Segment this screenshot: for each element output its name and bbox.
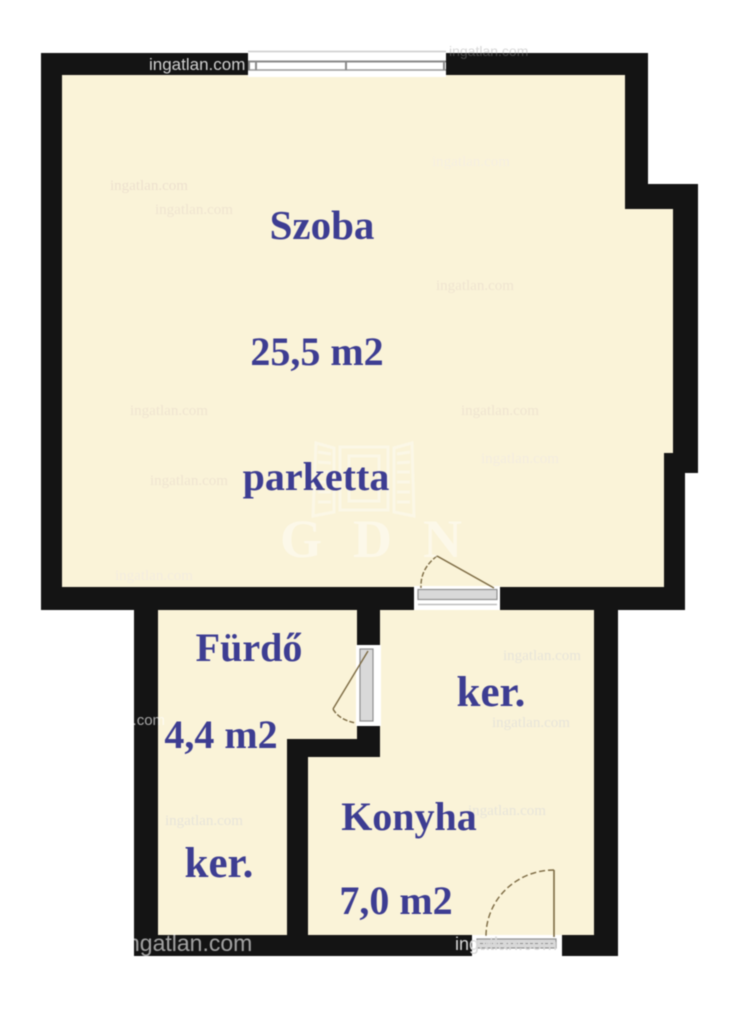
svg-text:ngatlan.com: ngatlan.com	[127, 930, 252, 956]
svg-text:Konyha: Konyha	[341, 794, 477, 839]
svg-text:4,4 m2: 4,4 m2	[164, 712, 277, 757]
svg-text:Fürdő: Fürdő	[196, 625, 303, 670]
svg-text:parketta: parketta	[243, 454, 390, 499]
svg-text:ingatlan.com: ingatlan.com	[149, 55, 245, 74]
svg-text:ingatlan.com: ingatlan.com	[80, 712, 165, 729]
svg-text:ingatlan.com: ingatlan.com	[150, 473, 228, 489]
svg-text:ingatlan.com: ingatlan.com	[468, 803, 546, 819]
svg-text:25,5 m2: 25,5 m2	[250, 329, 383, 374]
svg-text:ingatlan.com: ingatlan.com	[130, 403, 208, 419]
svg-text:ingatlan.com: ingatlan.com	[449, 43, 528, 59]
svg-text:ker.: ker.	[185, 840, 254, 887]
svg-text:ingatlan.com: ingatlan.com	[115, 568, 193, 584]
svg-text:GDN: GDN	[280, 509, 493, 569]
svg-text:ingatlan.com: ingatlan.com	[436, 278, 514, 294]
svg-text:ingatlan.com: ingatlan.com	[481, 451, 559, 467]
svg-text:ingatlan.com: ingatlan.com	[503, 648, 581, 664]
svg-text:ingatlan.com: ingatlan.com	[110, 178, 188, 194]
svg-text:7,0 m2: 7,0 m2	[339, 878, 452, 923]
svg-text:ingatlan.com: ingatlan.com	[432, 154, 510, 170]
svg-text:ingatlan.com: ingatlan.com	[165, 813, 243, 829]
svg-text:ingatlan.com: ingatlan.com	[155, 202, 233, 218]
svg-text:ingatlan.com: ingatlan.com	[461, 403, 539, 419]
svg-text:ingatlan.com: ingatlan.com	[455, 934, 557, 954]
svg-text:Szoba: Szoba	[270, 202, 375, 248]
svg-text:ingatlan.com: ingatlan.com	[492, 715, 570, 731]
svg-text:ker.: ker.	[457, 669, 526, 716]
